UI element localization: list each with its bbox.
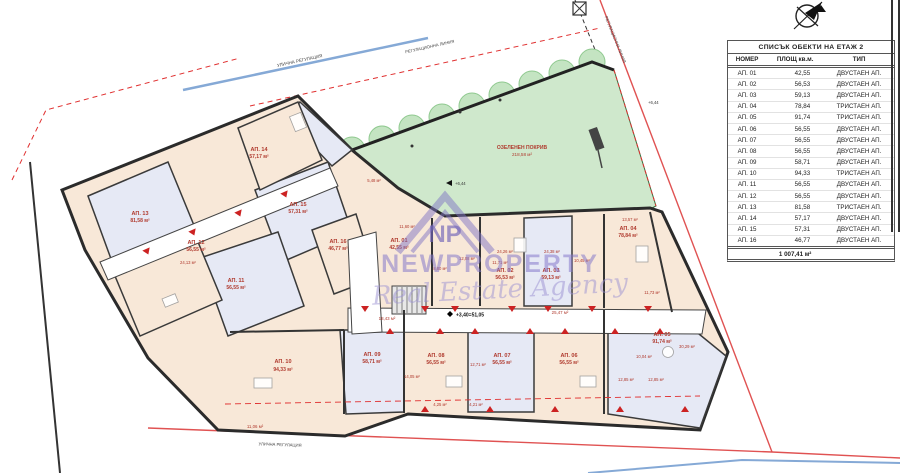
apt-area: 59,13 xyxy=(766,90,824,101)
apt-area: 42,55 xyxy=(766,67,824,79)
apt-number: АП. 01 xyxy=(728,67,766,79)
apt-area: 91,74 xyxy=(766,112,824,123)
unit-area: 94,33 м² xyxy=(273,367,293,373)
apt-type: ТРИСТАЕН АП. xyxy=(824,101,894,112)
unit-area: 81,58 м² xyxy=(130,218,150,224)
room-area: 10,45 м² xyxy=(574,258,591,263)
room-area: 30,29 м² xyxy=(679,344,696,349)
street-line-bottom xyxy=(588,460,900,473)
total-area: 1 007,41 м² xyxy=(766,248,824,260)
unit-area: 57,17 м² xyxy=(249,154,269,160)
unit-area: 56,55 м² xyxy=(426,360,446,366)
unit-area: 42,55 м² xyxy=(389,245,409,251)
apt-area: 56,55 xyxy=(766,146,824,157)
room-area: 12,08 м² xyxy=(459,256,476,261)
roof-level-mark-2: +6,44 xyxy=(455,181,466,186)
apt-number: АП. 13 xyxy=(728,202,766,213)
boundary-label-bottom: УЛИЧНА РЕГУЛАЦИЯ xyxy=(258,441,301,448)
room-area: 11,71 м² xyxy=(492,260,508,265)
plot-line-left xyxy=(30,162,60,473)
table-total-row: 1 007,41 м² xyxy=(728,248,894,260)
unit-area: 57,31 м² xyxy=(288,209,308,215)
unit-label: АП. 02 xyxy=(496,268,513,274)
table-row: АП. 0958,71ДВУСТАЕН АП. xyxy=(728,157,894,168)
table-row: АП. 0359,13ДВУСТАЕН АП. xyxy=(728,90,894,101)
unit-label: АП. 03 xyxy=(542,268,559,274)
table-row: АП. 1094,33ТРИСТАЕН АП. xyxy=(728,168,894,179)
apt-type: ДВУСТАЕН АП. xyxy=(824,235,894,247)
apt-area: 57,31 xyxy=(766,224,824,235)
unit-label: АП. 05 xyxy=(653,332,670,338)
table-row: АП. 1256,55ДВУСТАЕН АП. xyxy=(728,191,894,202)
unit-area: 56,55 м² xyxy=(226,285,246,291)
apt-number: АП. 11 xyxy=(728,179,766,190)
room-area: 14,05 м² xyxy=(404,374,421,379)
apt-area: 56,55 xyxy=(766,179,824,190)
north-compass-icon xyxy=(794,2,826,29)
room-area: 5,48 м² xyxy=(367,178,381,183)
apt-number: АП. 08 xyxy=(728,146,766,157)
apt-type: ТРИСТАЕН АП. xyxy=(824,202,894,213)
apt-number: АП. 15 xyxy=(728,224,766,235)
room-area: 4,21 м² xyxy=(469,402,483,407)
regulation-line-bottom-2 xyxy=(772,452,900,458)
table-row: АП. 0256,53ДВУСТАЕН АП. xyxy=(728,79,894,90)
apt-type: ДВУСТАЕН АП. xyxy=(824,157,894,168)
room-area: 12,85 м² xyxy=(648,377,665,382)
table-row: АП. 1457,17ДВУСТАЕН АП. xyxy=(728,213,894,224)
room-area: 10,04 м² xyxy=(636,354,653,359)
unit-label: АП. 09 xyxy=(363,352,380,358)
unit-label: АП. 14 xyxy=(250,147,268,153)
apt-area: 58,71 xyxy=(766,157,824,168)
apt-type: ДВУСТАЕН АП. xyxy=(824,67,894,79)
unit-area: 56,53 м² xyxy=(495,275,515,281)
unit-polygon-ap03 xyxy=(524,216,572,306)
room-area: 24,38 м² xyxy=(544,249,561,254)
room-area: 24,26 м² xyxy=(497,249,514,254)
unit-label: АП. 06 xyxy=(560,353,577,359)
unit-area: 46,77 м² xyxy=(328,246,348,252)
apt-type: ДВУСТАЕН АП. xyxy=(824,90,894,101)
unit-area: 91,74 м² xyxy=(652,339,672,345)
apt-type: ДВУСТАЕН АП. xyxy=(824,79,894,90)
boundary-label-right: РЕГУЛАЦИОННА ЛИНИЯ xyxy=(604,15,627,63)
apt-type: ТРИСТАЕН АП. xyxy=(824,168,894,179)
apt-number: АП. 02 xyxy=(728,79,766,90)
apt-area: 56,55 xyxy=(766,191,824,202)
col-type-header: ТИП xyxy=(824,54,894,67)
unit-label: АП. 11 xyxy=(228,278,245,284)
table-row: АП. 0756,55ДВУСТАЕН АП. xyxy=(728,135,894,146)
unit-area: 56,55 м² xyxy=(492,360,512,366)
apt-number: АП. 12 xyxy=(728,191,766,202)
green-roof-label: ОЗЕЛЕНЕН ПОКРИВ xyxy=(497,145,548,151)
apt-area: 57,17 xyxy=(766,213,824,224)
table-row: АП. 1557,31ДВУСТАЕН АП. xyxy=(728,224,894,235)
apt-type: ДВУСТАЕН АП. xyxy=(824,213,894,224)
apt-number: АП. 10 xyxy=(728,168,766,179)
room-area: 13,57 м² xyxy=(622,217,639,222)
unit-label: АП. 16 xyxy=(329,239,346,245)
unit-area: 59,13 м² xyxy=(541,275,561,281)
room-area: 4,25 м² xyxy=(433,402,447,407)
unit-label: АП. 13 xyxy=(131,211,148,217)
terrace-area-label: 11,06 м² xyxy=(247,424,264,429)
table-row: АП. 1646,77ДВУСТАЕН АП. xyxy=(728,235,894,247)
sheet-frame xyxy=(891,0,900,232)
staircase xyxy=(392,286,426,314)
unit-label: АП. 12 xyxy=(187,240,204,246)
apt-area: 94,33 xyxy=(766,168,824,179)
table-row: АП. 0142,55ДВУСТАЕН АП. xyxy=(728,67,894,79)
room-area: 24,13 м² xyxy=(180,260,197,265)
room-area: 8,80 м² xyxy=(433,266,447,271)
apt-area: 78,84 xyxy=(766,101,824,112)
room-area: 11,73 м² xyxy=(644,290,660,295)
unit-label: АП. 15 xyxy=(289,202,306,208)
room-area: 12,71 м² xyxy=(470,362,487,367)
green-roof-area-label: 218,58 м² xyxy=(512,152,532,157)
apt-type: ДВУСТАЕН АП. xyxy=(824,135,894,146)
table-row: АП. 0478,84ТРИСТАЕН АП. xyxy=(728,101,894,112)
apt-area: 46,77 xyxy=(766,235,824,247)
apt-area: 56,55 xyxy=(766,123,824,134)
table-row: АП. 1156,55ДВУСТАЕН АП. xyxy=(728,179,894,190)
unit-label: АП. 01 xyxy=(390,238,407,244)
unit-area: 58,71 м² xyxy=(362,359,382,365)
unit-label: АП. 07 xyxy=(493,353,510,359)
unit-area: 56,55 м² xyxy=(559,360,579,366)
objects-table: СПИСЪК ОБЕКТИ НА ЕТАЖ 2 НОМЕР ПЛОЩ кв.м.… xyxy=(727,40,895,262)
unit-area: 56,55 м² xyxy=(186,247,206,253)
apt-number: АП. 06 xyxy=(728,123,766,134)
unit-polygon-ap09 xyxy=(340,330,404,414)
apt-number: АП. 03 xyxy=(728,90,766,101)
table-row: АП. 0856,55ДВУСТАЕН АП. xyxy=(728,146,894,157)
room-area: 12,85 м² xyxy=(618,377,635,382)
apt-type: ДВУСТАЕН АП. xyxy=(824,123,894,134)
apt-number: АП. 14 xyxy=(728,213,766,224)
unit-label: АП. 10 xyxy=(274,359,291,365)
apt-area: 81,58 xyxy=(766,202,824,213)
street-line-top xyxy=(183,38,428,90)
table-row: АП. 0656,55ДВУСТАЕН АП. xyxy=(728,123,894,134)
room-area: 11,60 м² xyxy=(399,224,415,229)
table-row: АП. 0591,74ТРИСТАЕН АП. xyxy=(728,112,894,123)
apt-type: ДВУСТАЕН АП. xyxy=(824,224,894,235)
apt-number: АП. 07 xyxy=(728,135,766,146)
apt-area: 56,53 xyxy=(766,79,824,90)
table-header-row: НОМЕР ПЛОЩ кв.м. ТИП xyxy=(728,54,894,67)
table-row: АП. 1381,58ТРИСТАЕН АП. xyxy=(728,202,894,213)
unit-label: АП. 08 xyxy=(427,353,444,359)
apt-area: 56,55 xyxy=(766,135,824,146)
corridor-link xyxy=(348,232,382,334)
unit-area: 78,84 м² xyxy=(618,233,638,239)
apt-number: АП. 09 xyxy=(728,157,766,168)
col-number-header: НОМЕР xyxy=(728,54,766,67)
roof-level-mark: +6,44 xyxy=(648,100,659,105)
apt-type: ДВУСТАЕН АП. xyxy=(824,191,894,202)
col-area-header: ПЛОЩ кв.м. xyxy=(766,54,824,67)
corridor-area-label-2: 25,47 м² xyxy=(552,310,569,315)
apt-type: ТРИСТАЕН АП. xyxy=(824,112,894,123)
apt-type: ДВУСТАЕН АП. xyxy=(824,179,894,190)
apt-type: ДВУСТАЕН АП. xyxy=(824,146,894,157)
table-title: СПИСЪК ОБЕКТИ НА ЕТАЖ 2 xyxy=(728,41,894,54)
apt-number: АП. 16 xyxy=(728,235,766,247)
svg-text:+3,40=51,05: +3,40=51,05 xyxy=(456,313,484,319)
corridor-area-label: 18,43 м² xyxy=(379,316,396,321)
apt-number: АП. 04 xyxy=(728,101,766,112)
apt-number: АП. 05 xyxy=(728,112,766,123)
unit-label: АП. 04 xyxy=(619,226,637,232)
